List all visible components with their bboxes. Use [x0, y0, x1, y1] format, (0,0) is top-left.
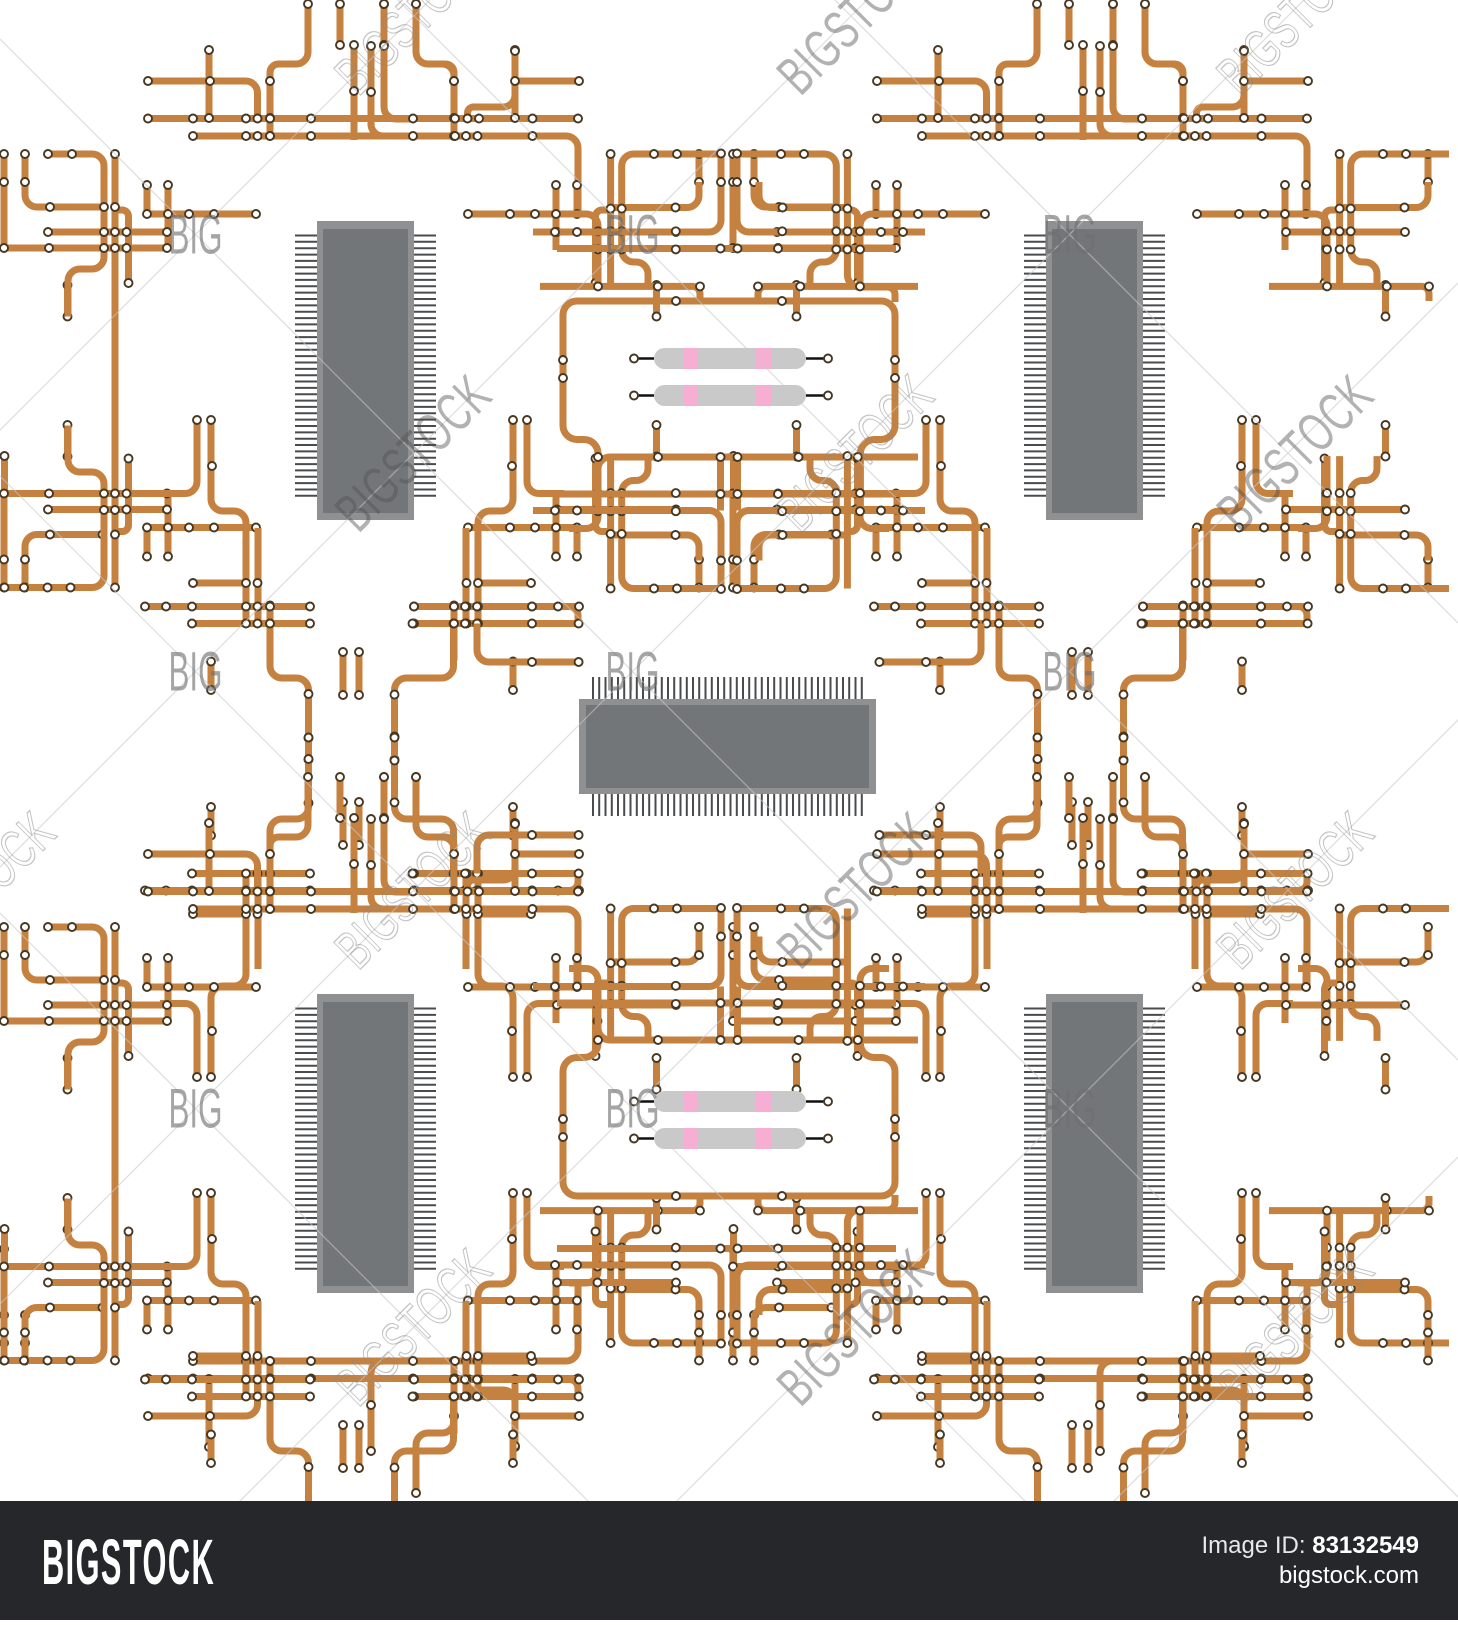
svg-text:BIG: BIG [168, 203, 222, 266]
svg-text:BIG: BIG [605, 203, 659, 266]
svg-text:BIG: BIG [168, 1077, 222, 1140]
svg-text:BIGSTOCK: BIGSTOCK [42, 1527, 215, 1598]
svg-text:Image ID: 83132549: Image ID: 83132549 [1202, 1532, 1420, 1559]
svg-text:bigstock.com: bigstock.com [1279, 1562, 1419, 1589]
svg-text:BIG: BIG [1042, 640, 1096, 703]
svg-text:BIG: BIG [1042, 203, 1096, 266]
svg-text:BIG: BIG [168, 640, 222, 703]
svg-text:BIG: BIG [605, 1077, 659, 1140]
svg-text:BIG: BIG [605, 640, 659, 703]
svg-text:BIG: BIG [1042, 1077, 1096, 1140]
